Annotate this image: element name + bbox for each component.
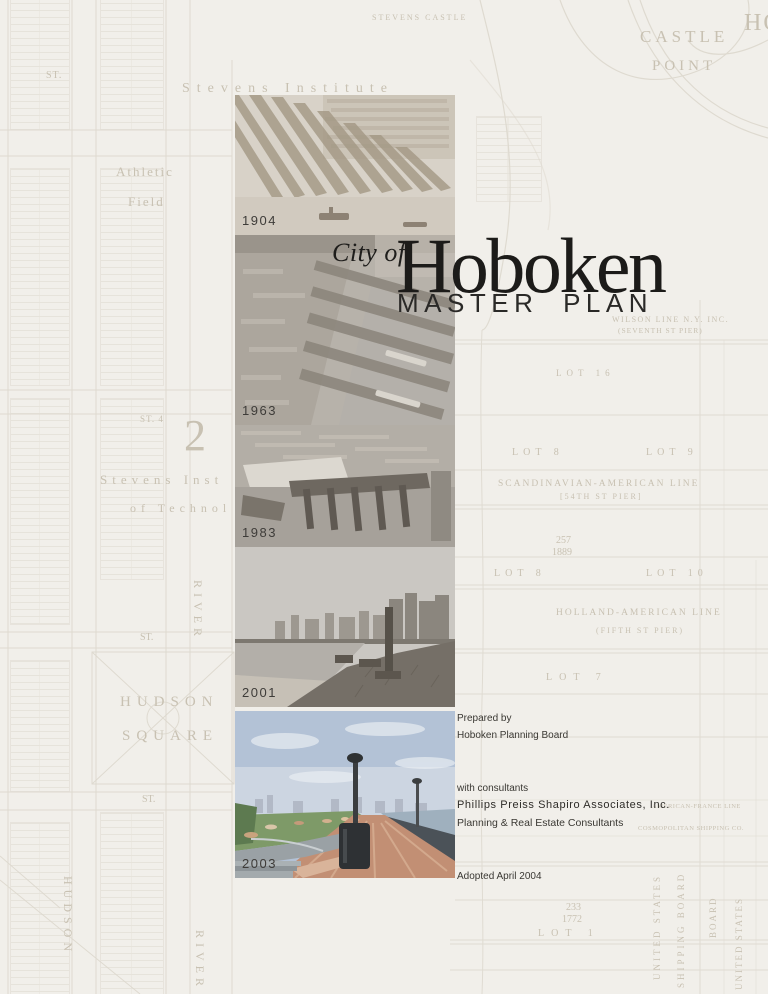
photo-2001: 2001 <box>235 547 455 707</box>
map-label: 257 <box>556 535 571 546</box>
map-label: 233 <box>566 902 581 913</box>
map-label: LOT 10 <box>646 568 708 579</box>
map-label: (SEVENTH ST PIER) <box>618 326 703 335</box>
post <box>385 607 393 679</box>
prepared-by-value: Hoboken Planning Board <box>457 730 568 741</box>
map-label: RIVER <box>191 580 205 641</box>
marina <box>431 471 451 541</box>
title-prefix: City of <box>332 240 406 266</box>
map-label: SQUARE <box>122 728 218 744</box>
map-label: Stevens Institute <box>182 81 394 96</box>
map-label: SHIPPING BOARD <box>676 872 686 988</box>
map-label: 2 <box>184 411 206 460</box>
photo-1983: 1983 <box>235 425 455 547</box>
map-label: ST. 4 <box>140 414 164 424</box>
map-label: HUDSON <box>120 694 219 710</box>
map-label: LOT 1 <box>538 928 600 939</box>
prepared-by-label: Prepared by <box>457 713 511 724</box>
map-label: CASTLE <box>640 27 728 46</box>
map-label: UNITED STATES <box>734 897 744 990</box>
map-label: POINT <box>652 58 716 74</box>
photo-2003: 2003 <box>235 711 455 878</box>
trash-barrel-highlight <box>343 829 347 863</box>
map-label: BOARD <box>708 896 718 938</box>
map-label: (FIFTH ST PIER) <box>596 626 684 635</box>
map-pier-lines <box>450 300 768 994</box>
map-label: HOLLAND-AMERICAN LINE <box>556 608 722 618</box>
map-label: LOT 7 <box>546 672 608 683</box>
consultant-name: Phillips Preiss Shapiro Associates, Inc. <box>457 799 670 811</box>
map-street-lines <box>0 0 232 994</box>
map-label: Stevens Inst <box>100 472 223 487</box>
adopted-date: Adopted April 2004 <box>457 871 542 882</box>
year-label: 1904 <box>242 213 277 228</box>
photo-strip: 1904 <box>235 95 455 878</box>
map-label: COSMOPOLITAN SHIPPING CO. <box>638 825 744 832</box>
map-label: 1889 <box>552 547 572 558</box>
photo-1904: 1904 <box>235 95 455 235</box>
map-label: HO <box>744 10 768 36</box>
master-plan-cover: STEVENS CASTLE CASTLE POINT Stevens Inst… <box>0 0 768 994</box>
map-label: ST. <box>140 632 153 643</box>
hudson-square-park <box>92 652 234 784</box>
map-label: of Technol <box>130 501 231 515</box>
map-label: HUDSON <box>61 876 75 956</box>
map-label: ST. <box>142 794 155 805</box>
photo-2003-art <box>235 711 455 878</box>
map-label: 1772 <box>562 914 582 925</box>
year-label: 2003 <box>242 856 277 871</box>
map-label: [54TH ST PIER] <box>560 492 643 501</box>
map-label: STEVENS CASTLE <box>372 13 467 22</box>
map-label: Field <box>128 194 165 209</box>
consultants-label: with consultants <box>457 783 528 794</box>
map-label: LOT 16 <box>556 368 615 378</box>
map-label: RIVER <box>193 930 207 991</box>
map-label: LOT 8 <box>494 568 546 579</box>
map-label: UNITED STATES <box>652 874 662 980</box>
map-label: Athletic <box>116 164 174 179</box>
map-label: SCANDINAVIAN-AMERICAN LINE <box>498 479 699 489</box>
consultant-role: Planning & Real Estate Consultants <box>457 817 623 829</box>
map-label: LOT 8 <box>512 447 564 458</box>
year-label: 1983 <box>242 525 277 540</box>
map-label: ST. <box>46 70 62 81</box>
year-label: 1963 <box>242 403 277 418</box>
title-subtitle: MASTER PLAN <box>397 290 653 316</box>
photo-2001-art <box>235 547 455 707</box>
year-label: 2001 <box>242 685 277 700</box>
map-label: LOT 9 <box>646 447 698 458</box>
